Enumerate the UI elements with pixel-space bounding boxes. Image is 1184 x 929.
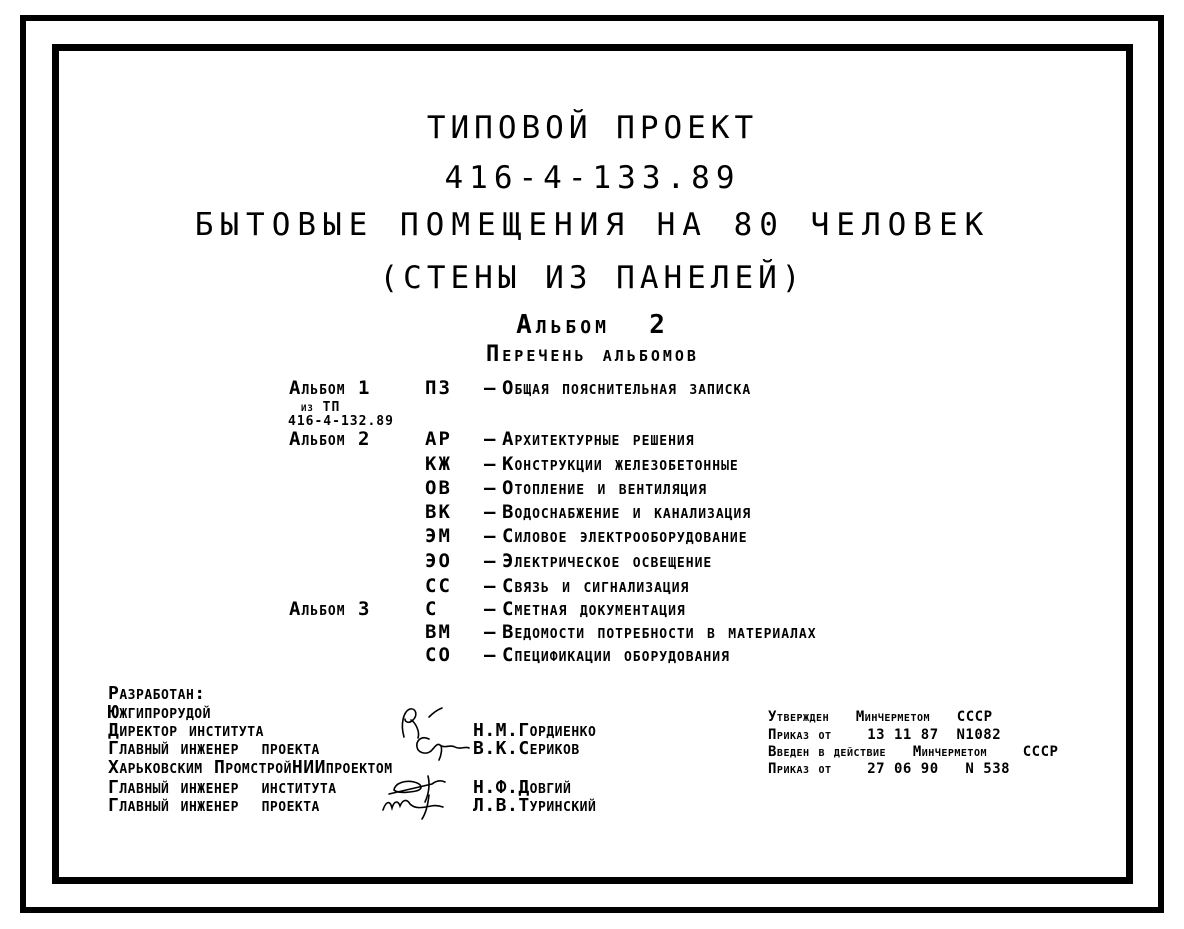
album1-note-line1: из ТП (301, 401, 340, 414)
dash-separator: – (484, 576, 495, 597)
name-turinskiy: Л.В.Туринский (473, 796, 596, 816)
album-label: Альбом 3 (289, 599, 370, 620)
approval-enacted-line: Введен в действие Минчерметом СССР (768, 745, 1058, 760)
album-code: ОВ (425, 478, 452, 499)
album-description: Отопление и вентиляция (502, 478, 707, 499)
project-number: 416-4-133.89 (59, 163, 1126, 194)
dash-separator: – (484, 526, 495, 547)
album-code: ЭО (425, 551, 452, 572)
album1-note-line2: 416-4-132.89 (288, 415, 394, 428)
album-description: Ведомости потребности в материалах (502, 622, 817, 643)
album-list-row: ЭМ – Силовое электрооборудование (289, 526, 929, 550)
developed-heading: Разработан: (108, 684, 206, 704)
album-code: ПЗ (425, 378, 452, 399)
dash-separator: – (484, 645, 495, 666)
dash-separator: – (484, 454, 495, 475)
approval-approved-line: Утвержден Минчерметом СССР (768, 710, 993, 725)
role-chief-engineer-project-2: Главный инженер проекта (108, 796, 320, 816)
album-label: Альбом 2 (289, 429, 370, 450)
album-description: Конструкции железобетонные (502, 454, 739, 475)
project-type-title: ТИПОВОЙ ПРОЕКТ (59, 113, 1126, 144)
dash-separator: – (484, 622, 495, 643)
album-code: КЖ (425, 454, 452, 475)
project-name: БЫТОВЫЕ ПОМЕЩЕНИЯ НА 80 ЧЕЛОВЕК (59, 210, 1126, 241)
album-description: Связь и сигнализация (502, 576, 689, 597)
album-list-row: ВМ – Ведомости потребности в материалах (289, 622, 929, 646)
approval-order-1: Приказ от 13 11 87 N1082 (768, 728, 1001, 743)
developer-org-2: Харьковским ПромстройНИИпроектом (108, 758, 393, 778)
album-description: Электрическое освещение (502, 551, 712, 572)
dash-separator: – (484, 478, 495, 499)
album-list-row: ЭО – Электрическое освещение (289, 551, 929, 575)
album-code: АР (425, 429, 452, 450)
album-list-row: Альбом 1 ПЗ – Общая пояснительная записк… (289, 378, 929, 402)
dash-separator: – (484, 429, 495, 450)
album-description: Архитектурные решения (502, 429, 695, 450)
dash-separator: – (484, 502, 495, 523)
album-list-row: КЖ – Конструкции железобетонные (289, 454, 929, 478)
title-sheet-page: { "colors": {"ink": "#000000", "paper": … (0, 0, 1184, 929)
album-label: Альбом 1 (289, 378, 370, 399)
album-description: Сметная документация (502, 599, 686, 620)
album-code: СО (425, 645, 452, 666)
album-code: ЭМ (425, 526, 452, 547)
album-code: ВК (425, 502, 452, 523)
dash-separator: – (484, 378, 495, 399)
album-description: Водоснабжение и канализация (502, 502, 751, 523)
dash-separator: – (484, 551, 495, 572)
album-list-row: СС – Связь и сигнализация (289, 576, 929, 600)
album-number-heading: Альбом 2 (59, 312, 1126, 338)
album-description: Общая пояснительная записка (502, 378, 751, 399)
approval-order-2: Приказ от 27 06 90 N 538 (768, 762, 1010, 777)
album-code: С (425, 599, 438, 620)
album-list-row: Альбом 3 С – Сметная документация (289, 599, 929, 623)
signature-serikov (413, 731, 471, 761)
signature-turinskiy (379, 792, 445, 820)
album-description: Спецификации оборудования (502, 645, 730, 666)
name-serikov: В.К.Сериков (473, 739, 580, 759)
project-subtitle: (СТЕНЫ ИЗ ПАНЕЛЕЙ) (59, 263, 1126, 294)
albums-list-heading: Перечень альбомов (59, 344, 1126, 366)
role-chief-engineer-project-1: Главный инженер проекта (108, 739, 320, 759)
album-code: ВМ (425, 622, 452, 643)
album-description: Силовое электрооборудование (502, 526, 748, 547)
dash-separator: – (484, 599, 495, 620)
album-list-row: ОВ – Отопление и вентиляция (289, 478, 929, 502)
album-list-row: Альбом 2 АР – Архитектурные решения (289, 429, 929, 453)
album-list-row: ВК – Водоснабжение и канализация (289, 502, 929, 526)
album-list-row: СО – Спецификации оборудования (289, 645, 929, 669)
album-code: СС (425, 576, 452, 597)
